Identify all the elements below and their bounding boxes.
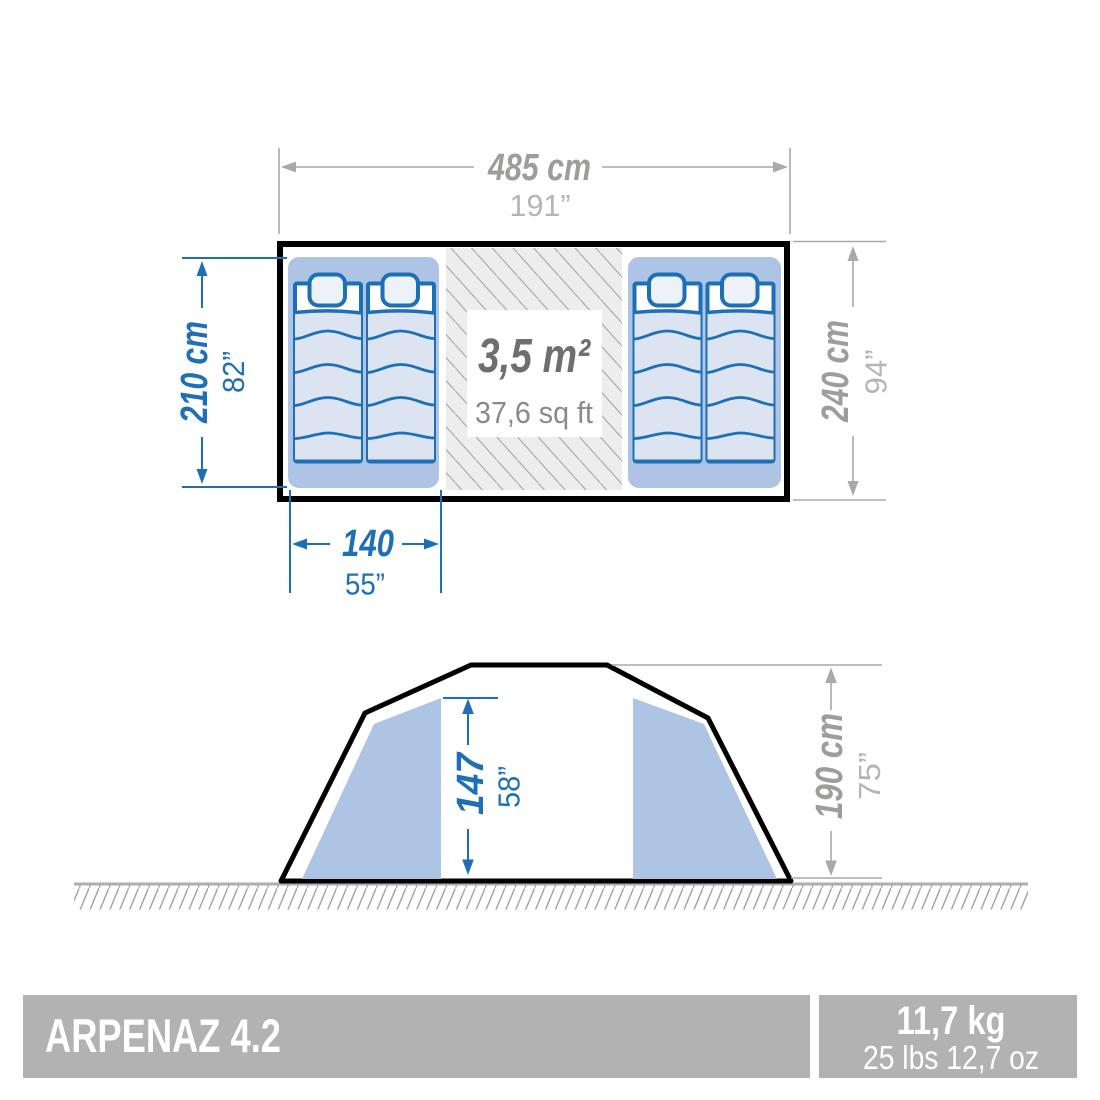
svg-text:3,5 m²: 3,5 m² bbox=[478, 330, 592, 383]
svg-text:240 cm: 240 cm bbox=[815, 320, 857, 423]
svg-text:58”: 58” bbox=[492, 766, 527, 808]
svg-text:210 cm: 210 cm bbox=[174, 321, 216, 424]
svg-text:190 cm: 190 cm bbox=[809, 713, 851, 819]
svg-text:75”: 75” bbox=[852, 752, 887, 800]
svg-text:485 cm: 485 cm bbox=[487, 147, 591, 189]
svg-text:37,6 sq ft: 37,6 sq ft bbox=[475, 395, 593, 430]
svg-text:11,7 kg: 11,7 kg bbox=[897, 999, 1006, 1043]
svg-text:94”: 94” bbox=[859, 350, 894, 395]
svg-text:82”: 82” bbox=[216, 351, 251, 393]
svg-text:140: 140 bbox=[342, 523, 394, 565]
svg-text:147: 147 bbox=[450, 751, 492, 815]
svg-text:25 lbs 12,7 oz: 25 lbs 12,7 oz bbox=[863, 1039, 1039, 1076]
svg-text:191”: 191” bbox=[510, 188, 571, 223]
svg-text:ARPENAZ 4.2: ARPENAZ 4.2 bbox=[45, 1009, 281, 1062]
svg-text:55”: 55” bbox=[345, 567, 385, 602]
